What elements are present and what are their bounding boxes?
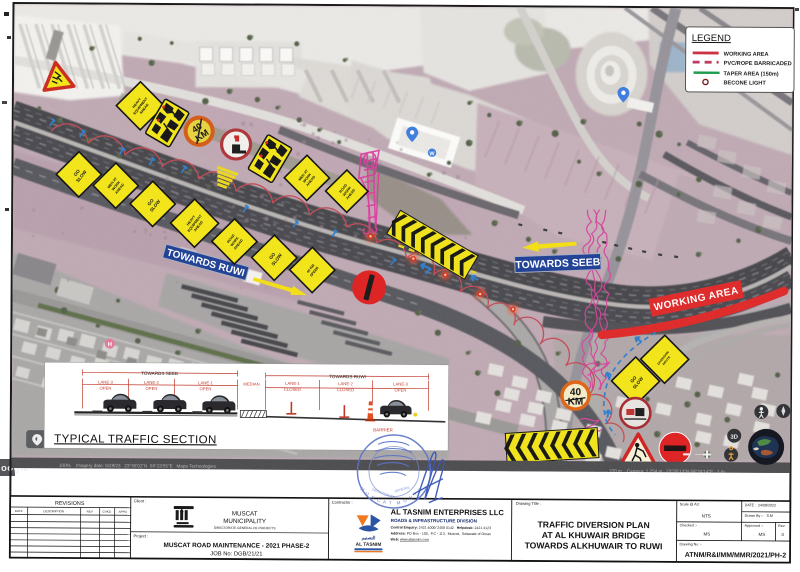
svg-text:AL TASNIM ENTERPRISES LLC: AL TASNIM ENTERPRISES LLC — [391, 507, 505, 517]
svg-text:AT AL KHUWAIR BRIDGE: AT AL KHUWAIR BRIDGE — [542, 530, 646, 541]
svg-text:LANE-2: LANE-2 — [338, 381, 353, 386]
svg-text:CHKD: CHKD — [102, 510, 111, 514]
svg-text:AL TASNIM: AL TASNIM — [356, 542, 382, 548]
svg-text:MEDIAN: MEDIAN — [243, 382, 259, 387]
svg-text:CLOSED: CLOSED — [284, 387, 301, 392]
svg-text:ATNM/R&I/MM/MMR/2021/PH-2: ATNM/R&I/MM/MMR/2021/PH-2 — [685, 552, 787, 560]
svg-text:DATE : 24/08/2022: DATE : 24/08/2022 — [745, 503, 776, 507]
svg-text:TOWARDS ALKHUWAIR TO RUWI: TOWARDS ALKHUWAIR TO RUWI — [525, 540, 663, 551]
svg-text:WORKING AREA: WORKING AREA — [724, 52, 769, 58]
svg-text:LANE-3: LANE-3 — [393, 381, 408, 386]
svg-text:REV: REV — [87, 509, 93, 513]
svg-text:MS: MS — [704, 531, 711, 536]
svg-text:Drawing Title :: Drawing Title : — [516, 501, 541, 506]
svg-text:LANE-1: LANE-1 — [285, 381, 300, 386]
svg-text:LANE-1: LANE-1 — [198, 380, 213, 385]
svg-text:TYPICAL TRAFFIC SECTION: TYPICAL TRAFFIC SECTION — [54, 433, 217, 446]
svg-text:DIRECTORATE GENERAL OF PROJECT: DIRECTORATE GENERAL OF PROJECTS — [214, 526, 276, 530]
svg-text:APPD: APPD — [119, 510, 128, 514]
svg-text:TOWARDS SEEB: TOWARDS SEEB — [141, 371, 178, 376]
svg-text:T: T — [389, 500, 392, 505]
svg-text:Address: PO Box - 100, P.C -: Address: PO Box - 100, P.C - 113, Muscat… — [391, 531, 492, 536]
svg-text:OPEN: OPEN — [200, 386, 212, 391]
svg-text:REVISIONS: REVISIONS — [55, 501, 85, 507]
svg-text:ROADS & INFRASTRUCTURE DIVISIO: ROADS & INFRASTRUCTURE DIVISION — [391, 518, 478, 524]
svg-text:NTS: NTS — [702, 513, 711, 518]
svg-text:JOB No: DGB/21/21: JOB No: DGB/21/21 — [210, 551, 262, 557]
svg-text:Approved :-: Approved :- — [745, 524, 764, 528]
svg-text:Central Enquiry: 2421 4000/ 24: Central Enquiry: 2421 4000/ 2458 0142 He… — [391, 525, 492, 530]
svg-text:Project :: Project : — [134, 533, 149, 538]
svg-text:Drawing No :-: Drawing No :- — [679, 542, 702, 546]
svg-text:PVC/ROPE BARRICADED: PVC/ROPE BARRICADED — [724, 61, 792, 67]
svg-text:M: M — [396, 500, 400, 505]
svg-text:Drawn By :- S.M: Drawn By :- S.M — [745, 514, 773, 518]
svg-text:MUNICIPALITY: MUNICIPALITY — [223, 518, 266, 525]
svg-text:Scale @ A3:: Scale @ A3: — [680, 502, 700, 506]
svg-text:MUSCAT: MUSCAT — [232, 510, 258, 517]
svg-text:CLOSED: CLOSED — [337, 387, 354, 392]
svg-text:MUSCAT ROAD MAINTENANCE - 2021: MUSCAT ROAD MAINTENANCE - 2021 PHASE-2 — [164, 542, 310, 550]
svg-text:Contractor :: Contractor : — [332, 500, 353, 505]
svg-text:Client :: Client : — [134, 498, 146, 503]
svg-text:Checked :-: Checked :- — [680, 523, 698, 527]
svg-text:TOWARDS RUWI: TOWARDS RUWI — [329, 374, 366, 379]
svg-text:MS: MS — [759, 532, 766, 537]
svg-text:OPEN: OPEN — [395, 387, 407, 392]
svg-text:TRAFFIC DIVERSION PLAN: TRAFFIC DIVERSION PLAN — [537, 519, 649, 530]
svg-text:Web: www.altasnim.com: Web: www.altasnim.com — [391, 537, 430, 541]
svg-text:DATE: DATE — [15, 509, 23, 513]
svg-text:TAPER AREA (150m): TAPER AREA (150m) — [724, 71, 779, 77]
svg-text:BARRIER: BARRIER — [373, 427, 393, 432]
svg-text:LEGEND: LEGEND — [692, 33, 731, 44]
svg-text:BECONE LIGHT: BECONE LIGHT — [723, 80, 766, 86]
svg-text:Rev:: Rev: — [778, 524, 785, 528]
svg-text:LANE-2: LANE-2 — [144, 380, 159, 385]
svg-text:OPEN: OPEN — [146, 386, 158, 391]
svg-text:DESCRIPTION: DESCRIPTION — [43, 509, 64, 513]
svg-text:LANE-3: LANE-3 — [98, 380, 113, 385]
svg-text:OPEN: OPEN — [100, 386, 112, 391]
